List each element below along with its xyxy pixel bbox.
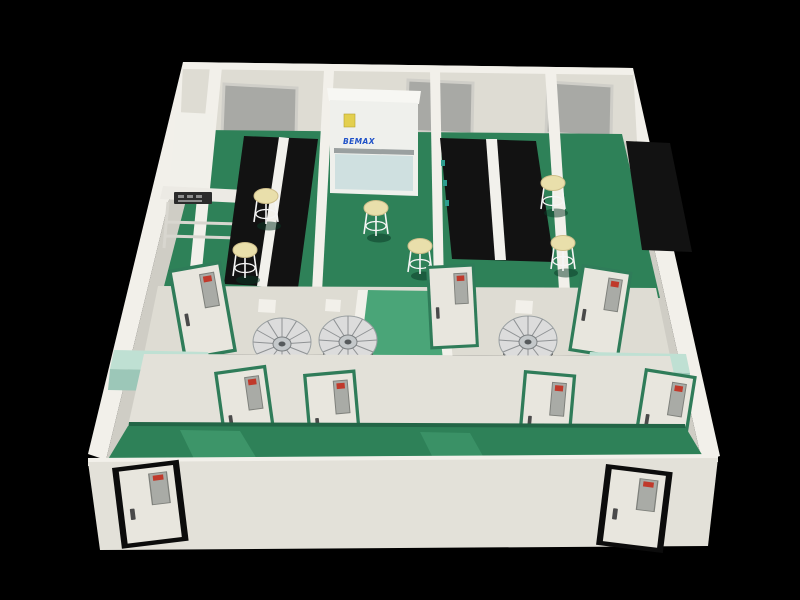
cabinet-glass-sash — [335, 154, 413, 191]
air-vent — [325, 299, 341, 312]
biosafety-cabinet: BEMAX — [327, 88, 421, 196]
window-panel-left — [222, 84, 297, 138]
lower-room-wall — [128, 354, 686, 428]
air-vent — [515, 300, 533, 314]
lab-render-canvas: BEMAX — [0, 0, 800, 600]
air-vent — [258, 299, 276, 313]
cabinet-brand-label: BEMAX — [343, 137, 376, 146]
warning-sticker — [344, 114, 355, 127]
entrance-door-right — [596, 464, 673, 553]
front-wall — [88, 454, 718, 553]
fume-workstation-cabinet — [169, 112, 214, 190]
lab-door — [426, 263, 479, 349]
entrance-door-left — [112, 460, 189, 549]
lab-3d-render: BEMAX — [0, 0, 800, 600]
